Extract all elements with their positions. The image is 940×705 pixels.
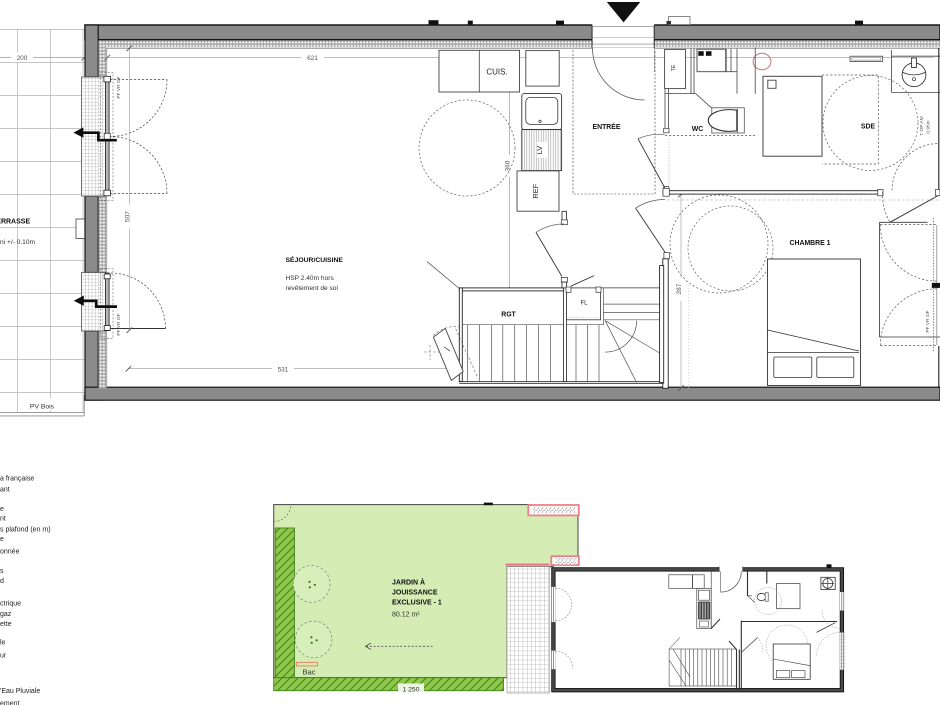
svg-text:gaz: gaz bbox=[0, 611, 12, 618]
svg-text:nt: nt bbox=[0, 516, 6, 523]
svg-text:EXCLUSIVE - 1: EXCLUSIVE - 1 bbox=[392, 600, 442, 607]
svg-text:SÉJOUR/CUISINE: SÉJOUR/CUISINE bbox=[286, 255, 344, 264]
svg-text:JARDIN À: JARDIN À bbox=[392, 578, 425, 587]
svg-text:CHAMBRE 1: CHAMBRE 1 bbox=[790, 240, 831, 247]
svg-text:200: 200 bbox=[17, 55, 28, 62]
svg-text:WC: WC bbox=[692, 126, 704, 133]
svg-text:SDE: SDE bbox=[861, 124, 876, 131]
svg-text:287: 287 bbox=[676, 283, 683, 294]
svg-text:360: 360 bbox=[504, 160, 511, 171]
svg-text:ur: ur bbox=[0, 653, 7, 660]
svg-text:ctrique: ctrique bbox=[0, 601, 21, 608]
svg-text:FL: FL bbox=[580, 301, 588, 307]
svg-text:PF VR OF: PF VR OF bbox=[925, 310, 931, 332]
svg-text:CUIS.: CUIS. bbox=[486, 68, 507, 77]
svg-text:531: 531 bbox=[278, 366, 289, 373]
svg-text:HSP 2.40m hors: HSP 2.40m hors bbox=[286, 275, 335, 282]
svg-text:s: s bbox=[0, 568, 4, 575]
svg-text:revêtement de sol: revêtement de sol bbox=[286, 285, 339, 292]
svg-text:0.95m: 0.95m bbox=[926, 120, 932, 133]
svg-text:TE: TE bbox=[671, 64, 677, 71]
svg-text:le: le bbox=[0, 640, 6, 647]
svg-text:LV: LV bbox=[535, 146, 544, 155]
svg-text:onnée: onnée bbox=[0, 549, 20, 556]
svg-text:PF VR OF: PF VR OF bbox=[116, 76, 122, 98]
svg-text:d: d bbox=[0, 578, 4, 585]
svg-text:ENTRÉE: ENTRÉE bbox=[593, 122, 621, 131]
svg-text:a française: a française bbox=[0, 476, 34, 483]
svg-text:621: 621 bbox=[307, 55, 318, 62]
svg-text:PF VR OF: PF VR OF bbox=[116, 313, 122, 335]
svg-text:ette: ette bbox=[0, 621, 12, 628]
svg-text:'Eau Pluviale: 'Eau Pluviale bbox=[0, 688, 40, 695]
svg-text:e: e bbox=[0, 506, 4, 513]
svg-text:T OP AM: T OP AM bbox=[919, 116, 925, 135]
svg-text:80.12 m²: 80.12 m² bbox=[392, 612, 420, 619]
svg-text:REF: REF bbox=[531, 183, 540, 198]
svg-text:ant: ant bbox=[0, 487, 10, 494]
svg-text:e: e bbox=[0, 536, 4, 543]
svg-text:RGT: RGT bbox=[501, 312, 516, 319]
svg-text:ement: ement bbox=[0, 701, 20, 705]
svg-text:s plafond (en m): s plafond (en m) bbox=[0, 527, 51, 534]
svg-text:ni +/- 0.10m: ni +/- 0.10m bbox=[0, 239, 36, 246]
svg-text:TERRASSE: TERRASSE bbox=[0, 219, 30, 226]
svg-text:Bac: Bac bbox=[302, 668, 315, 677]
svg-text:507: 507 bbox=[125, 211, 132, 222]
svg-text:JOUISSANCE: JOUISSANCE bbox=[392, 590, 438, 597]
svg-text:PV Bois: PV Bois bbox=[30, 404, 55, 411]
svg-text:1 250: 1 250 bbox=[402, 687, 419, 694]
